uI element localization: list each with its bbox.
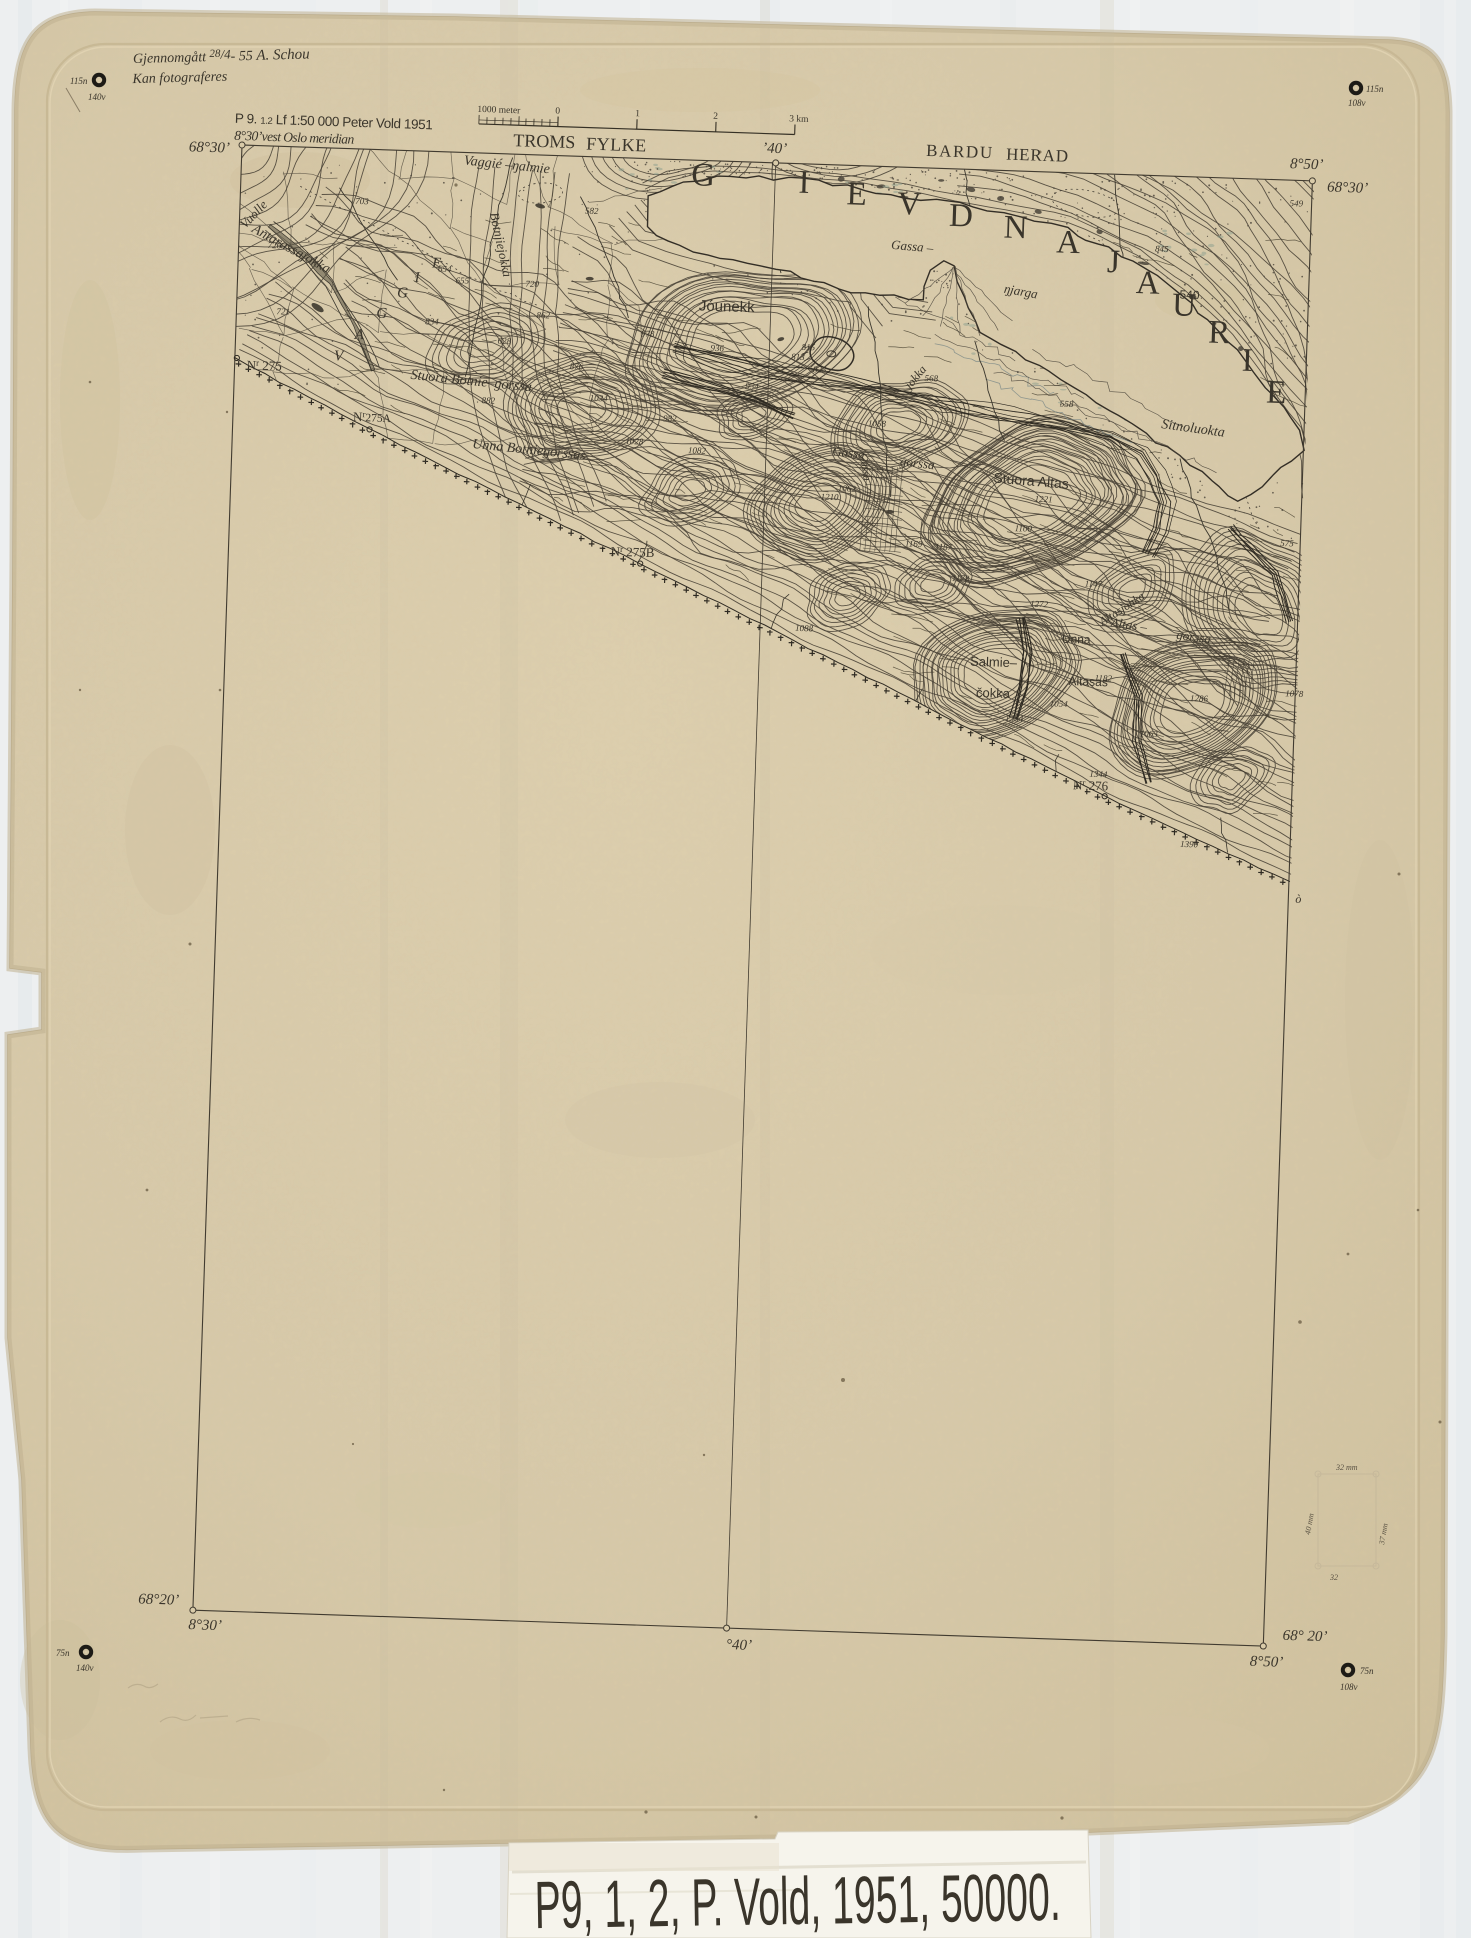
svg-text:108v: 108v: [1348, 98, 1366, 108]
svg-text:HERAD: HERAD: [1006, 145, 1069, 166]
svg-text:G: G: [691, 157, 716, 194]
svg-text:I: I: [798, 165, 810, 201]
svg-text:G: G: [376, 306, 388, 322]
svg-text:882: 882: [481, 395, 495, 405]
svg-text:Kan fotograferes: Kan fotograferes: [131, 70, 228, 88]
svg-text:140v: 140v: [76, 1663, 94, 1673]
svg-text:A: A: [1135, 265, 1160, 302]
svg-text:R: R: [1208, 314, 1231, 351]
svg-text:8°50’: 8°50’: [1290, 156, 1324, 173]
svg-text:582: 582: [585, 206, 599, 216]
svg-text:Unna: Unna: [1062, 632, 1091, 647]
svg-text:1178: 1178: [952, 573, 970, 584]
svg-text:549: 549: [1289, 198, 1303, 208]
svg-text:1058: 1058: [868, 418, 887, 429]
svg-text:721: 721: [276, 306, 290, 316]
svg-text:115n: 115n: [1366, 84, 1384, 94]
svg-text:32 mm: 32 mm: [1335, 1463, 1358, 1472]
svg-text:Jóunekk: Jóunekk: [699, 297, 756, 316]
svg-text:čokka: čokka: [976, 685, 1011, 701]
svg-text:V: V: [897, 186, 922, 223]
svg-text:862: 862: [536, 310, 550, 320]
svg-text:115n: 115n: [70, 76, 88, 86]
svg-text:A: A: [1056, 224, 1081, 261]
svg-text:75n: 75n: [56, 1648, 70, 1658]
svg-text:1062: 1062: [838, 483, 857, 494]
svg-text:108v: 108v: [1340, 1682, 1358, 1692]
svg-text:1078: 1078: [1285, 688, 1304, 699]
svg-text:954: 954: [745, 381, 759, 391]
svg-text:1: 1: [635, 109, 640, 119]
svg-text:68°30’: 68°30’: [189, 139, 231, 156]
svg-text:8°50’: 8°50’: [1249, 1654, 1283, 1671]
svg-text:1088: 1088: [795, 623, 814, 634]
svg-text:1034: 1034: [590, 393, 609, 404]
svg-text:J: J: [1107, 244, 1121, 280]
svg-text:0: 0: [555, 106, 560, 116]
svg-text:3 km: 3 km: [789, 114, 809, 125]
svg-text:8°30’: 8°30’: [188, 1617, 222, 1634]
svg-text:845: 845: [1155, 244, 1169, 254]
svg-text:1286: 1286: [1190, 693, 1209, 704]
svg-text:’40’: ’40’: [762, 140, 788, 157]
svg-text:655: 655: [455, 275, 469, 285]
svg-text:1187: 1187: [935, 541, 953, 552]
svg-text:1221: 1221: [1034, 494, 1052, 505]
svg-text:876: 876: [570, 361, 584, 371]
svg-text:1182: 1182: [1094, 673, 1112, 684]
svg-text:ò: ò: [1295, 892, 1301, 906]
svg-text:BARDU: BARDU: [926, 141, 993, 162]
svg-text:°40’: °40’: [726, 1637, 753, 1654]
svg-text:982: 982: [663, 413, 677, 423]
svg-text:1384: 1384: [1005, 713, 1024, 724]
svg-text:1147: 1147: [1085, 578, 1103, 589]
svg-text:N: N: [1003, 210, 1028, 247]
svg-text:1210: 1210: [820, 492, 839, 503]
svg-text:P9, 1, 2, P. Vold, 1951, 50000: P9, 1, 2, P. Vold, 1951, 50000.: [534, 1860, 1061, 1938]
svg-text:1028: 1028: [625, 436, 644, 447]
svg-text:568: 568: [924, 373, 938, 383]
svg-text:1100: 1100: [1014, 523, 1032, 534]
svg-text:Nr 275: Nr 275: [246, 357, 282, 373]
svg-text:140v: 140v: [88, 92, 106, 102]
svg-text:1063: 1063: [1140, 728, 1159, 739]
svg-text:726: 726: [267, 240, 281, 250]
svg-text:1000 meter: 1000 meter: [477, 105, 521, 116]
svg-text:68°30’: 68°30’: [1327, 179, 1369, 196]
svg-text:815: 815: [801, 342, 815, 352]
svg-text:68°20’: 68°20’: [138, 1591, 180, 1608]
svg-text:Salmie–: Salmie–: [970, 654, 1018, 671]
svg-text:1344: 1344: [1089, 769, 1108, 780]
svg-text:FYLKE: FYLKE: [586, 134, 647, 156]
svg-text:1272: 1272: [1030, 599, 1049, 610]
svg-text:813: 813: [791, 352, 805, 362]
svg-text:825: 825: [813, 364, 827, 374]
svg-text:G: G: [397, 285, 409, 301]
svg-text:703: 703: [355, 196, 369, 206]
svg-text:1054: 1054: [1050, 698, 1069, 709]
svg-text:Nr 275B: Nr 275B: [610, 544, 655, 560]
svg-text:Nr 276: Nr 276: [1073, 777, 1109, 793]
svg-text:E: E: [846, 176, 867, 213]
svg-text:834: 834: [425, 316, 439, 326]
svg-text:1390: 1390: [1180, 839, 1199, 850]
svg-text:654: 654: [438, 264, 452, 274]
svg-text:540: 540: [1179, 287, 1200, 302]
svg-text:558: 558: [1060, 399, 1074, 409]
svg-text:575: 575: [1280, 538, 1294, 548]
svg-text:2: 2: [713, 112, 718, 122]
svg-text:720: 720: [525, 279, 539, 289]
svg-text:68° 20’: 68° 20’: [1282, 1628, 1327, 1645]
svg-text:D: D: [949, 198, 974, 235]
svg-text:E: E: [1266, 374, 1287, 411]
svg-text:936: 936: [710, 343, 724, 353]
svg-text:A: A: [353, 327, 365, 343]
svg-text:75n: 75n: [1360, 1666, 1374, 1676]
svg-text:978: 978: [641, 328, 655, 338]
svg-text:628: 628: [497, 336, 511, 346]
svg-text:TROMS: TROMS: [513, 130, 576, 152]
svg-text:I: I: [1241, 343, 1253, 379]
svg-text:1082: 1082: [688, 445, 707, 456]
svg-text:1169: 1169: [905, 538, 923, 549]
svg-text:32: 32: [1329, 1573, 1338, 1582]
